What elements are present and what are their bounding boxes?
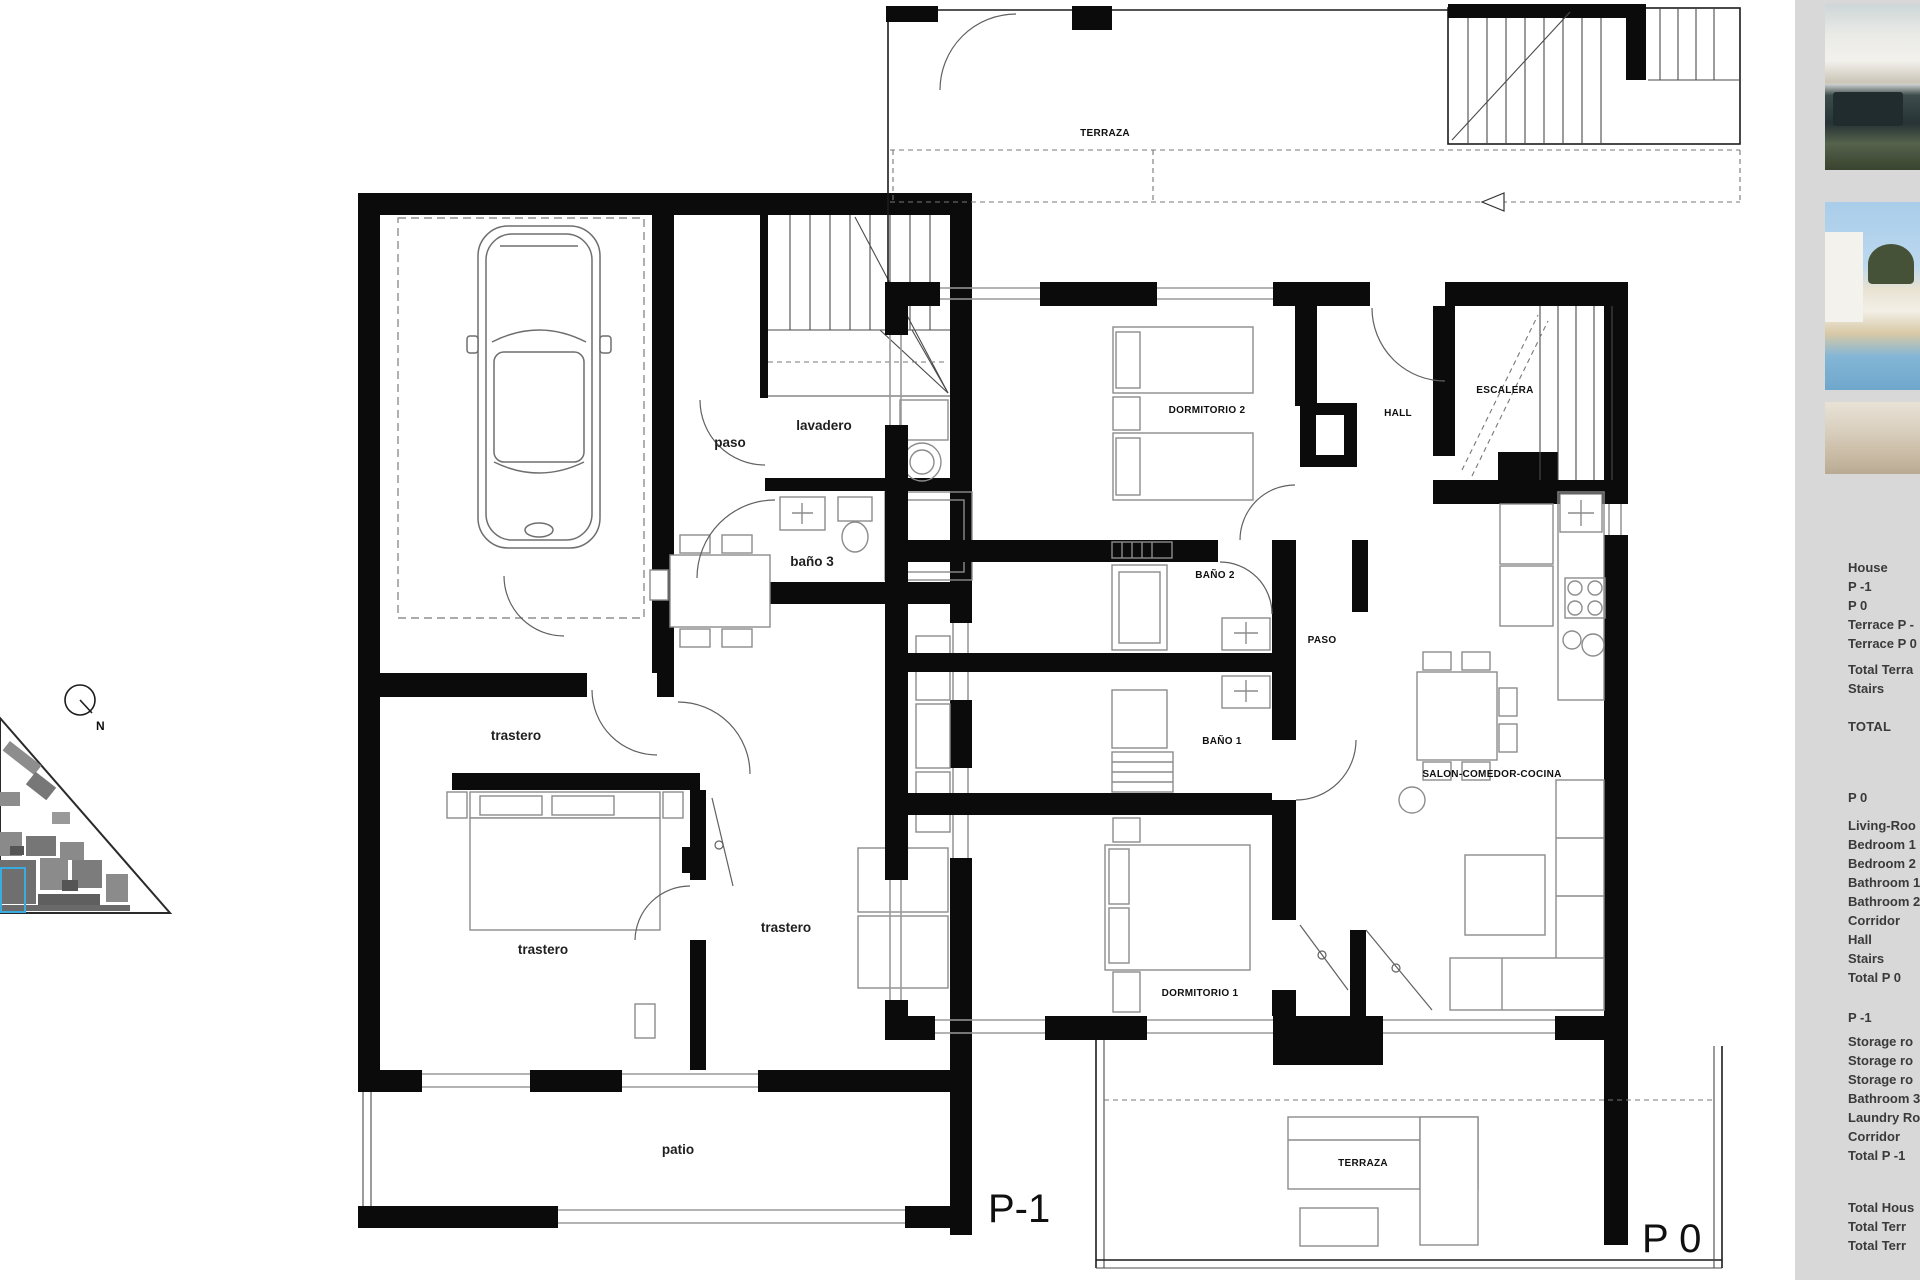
photo-terrace-render — [1825, 402, 1920, 474]
p1-bed — [447, 792, 683, 1038]
compass-north-icon: N — [65, 685, 105, 733]
room-label-paso: paso — [714, 435, 746, 450]
p0-walls — [885, 282, 1628, 1245]
direction-arrow-icon — [1482, 193, 1504, 211]
site-plan: N — [0, 655, 220, 945]
room-label-terraza-bottom: TERRAZA — [1338, 1158, 1388, 1169]
room-label-paso: PASO — [1308, 635, 1337, 646]
room-label-trastero-a: trastero — [491, 728, 541, 743]
schedule-line: Storage ro — [1848, 1070, 1920, 1089]
schedule-heading-p0: P 0 — [1848, 788, 1920, 807]
schedule-line: Terrace P 0 — [1848, 634, 1920, 653]
photo-beach-render — [1825, 202, 1920, 390]
room-label-trastero-b: trastero — [518, 942, 568, 957]
schedule-line: Bathroom 2 — [1848, 892, 1920, 911]
car-top-view — [467, 226, 611, 548]
schedule-line: Bedroom 2 — [1848, 854, 1920, 873]
schedule-line: Total Hous — [1848, 1198, 1920, 1217]
schedule-line: Storage ro — [1848, 1032, 1920, 1051]
sidebar-panel: House P -1 P 0 Terrace P - Terrace P 0 T… — [1795, 0, 1920, 1280]
room-label-salon: SALON-COMEDOR-COCINA — [1422, 769, 1561, 780]
schedule-line: Total P -1 — [1848, 1146, 1920, 1165]
schedule-line: Bathroom 1 — [1848, 873, 1920, 892]
schedule-line: Corridor — [1848, 911, 1920, 930]
site-plan-triangle — [0, 718, 170, 913]
schedule-line: Stairs — [1848, 949, 1920, 968]
schedule-line: Bedroom 1 — [1848, 835, 1920, 854]
schedule-line: Living-Roo — [1848, 816, 1920, 835]
area-schedule: House P -1 P 0 Terrace P - Terrace P 0 T… — [1848, 558, 1920, 1255]
schedule-line: Hall — [1848, 930, 1920, 949]
p0-exterior-stairs — [1448, 4, 1740, 144]
room-label-bano2: BAÑO 2 — [1195, 568, 1235, 581]
schedule-line: Bathroom 3 — [1848, 1089, 1920, 1108]
schedule-line: Total Terr — [1848, 1236, 1920, 1255]
room-label-trastero-c: trastero — [761, 920, 811, 935]
schedule-line: House — [1848, 558, 1920, 577]
room-label-lavadero: lavadero — [796, 418, 852, 433]
p0-bottom-terrace — [1096, 1040, 1722, 1268]
schedule-line: Laundry Ro — [1848, 1108, 1920, 1127]
schedule-line: Total Terra — [1848, 660, 1920, 679]
schedule-line: Stairs — [1848, 679, 1920, 698]
schedule-heading-p1: P -1 — [1848, 1008, 1920, 1027]
room-label-dormitorio1: DORMITORIO 1 — [1162, 988, 1239, 999]
room-label-patio: patio — [662, 1142, 694, 1157]
kitchen-fixtures — [1500, 492, 1605, 700]
room-label-escalera: ESCALERA — [1476, 385, 1533, 396]
floor-label-p0: P 0 — [1642, 1217, 1701, 1261]
photo-villa-render — [1825, 4, 1920, 170]
schedule-line: Total Terr — [1848, 1217, 1920, 1236]
room-label-dormitorio2: DORMITORIO 2 — [1169, 405, 1246, 416]
salon-furniture — [1399, 652, 1604, 1010]
room-label-terraza-top: TERRAZA — [1080, 128, 1130, 139]
schedule-total-label: TOTAL — [1848, 717, 1920, 736]
schedule-line: Corridor — [1848, 1127, 1920, 1146]
plan-p0: TERRAZA DORMITORIO 2 HALL ESCALERA BAÑO … — [880, 0, 1760, 1280]
schedule-line: P -1 — [1848, 577, 1920, 596]
schedule-line: Storage ro — [1848, 1051, 1920, 1070]
room-label-bano1: BAÑO 1 — [1202, 734, 1242, 747]
north-label: N — [96, 719, 105, 733]
room-label-hall: HALL — [1384, 408, 1412, 419]
schedule-line: P 0 — [1848, 596, 1920, 615]
floorplan-sheet: N — [0, 0, 1920, 1280]
dorm1-bed — [1105, 818, 1250, 1012]
room-label-bano3: baño 3 — [790, 554, 834, 569]
schedule-line: Terrace P - — [1848, 615, 1920, 634]
schedule-line: Total P 0 — [1848, 968, 1920, 987]
